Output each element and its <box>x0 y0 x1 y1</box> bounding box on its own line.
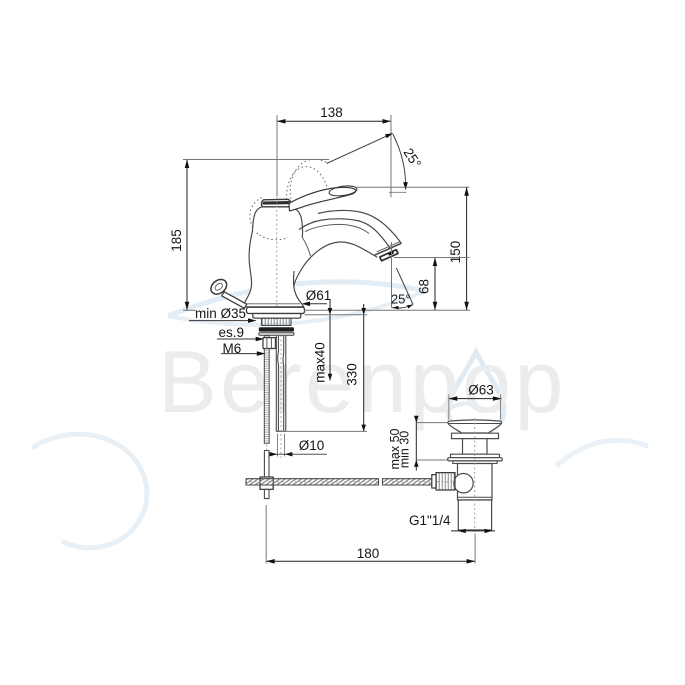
svg-text:Ø63: Ø63 <box>468 383 494 398</box>
svg-text:185: 185 <box>169 229 184 252</box>
svg-text:G1"1/4: G1"1/4 <box>409 513 451 528</box>
svg-text:Ø10: Ø10 <box>299 438 325 453</box>
svg-text:Ø61: Ø61 <box>306 288 332 303</box>
svg-text:Berenpop: Berenpop <box>158 332 567 431</box>
svg-text:180: 180 <box>357 546 380 561</box>
svg-text:max40: max40 <box>313 342 328 383</box>
svg-text:min 30: min 30 <box>398 431 412 469</box>
svg-text:es.9: es.9 <box>219 325 245 340</box>
svg-text:68: 68 <box>417 279 432 294</box>
svg-text:330: 330 <box>345 363 360 386</box>
svg-text:138: 138 <box>320 105 343 120</box>
svg-text:150: 150 <box>448 241 463 264</box>
svg-text:25°: 25° <box>391 292 411 307</box>
svg-text:min Ø35: min Ø35 <box>195 306 246 321</box>
